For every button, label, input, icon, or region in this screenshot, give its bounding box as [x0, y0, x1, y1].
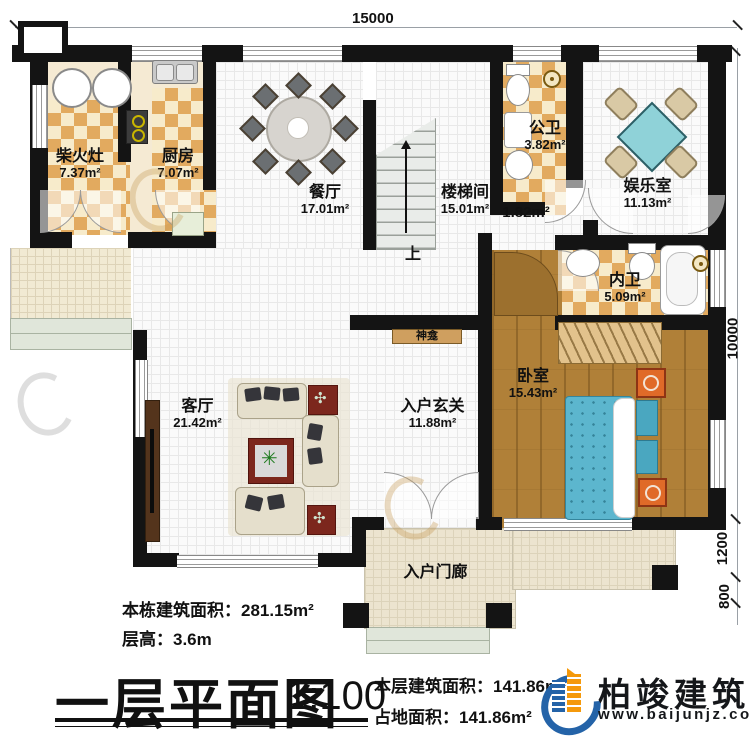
wall: [352, 517, 366, 567]
room-name: 卧室: [498, 368, 568, 386]
room-label-chaihuozao: 柴火灶 7.37m²: [30, 148, 130, 181]
dimension-tick: [730, 514, 741, 525]
window: [710, 250, 726, 307]
wall: [342, 45, 513, 62]
floor-plan-page: 15000 10000 1200 800: [0, 0, 750, 737]
dimension-right-small: 800: [716, 584, 733, 609]
wardrobe: [558, 322, 662, 364]
room-area: 15.43m²: [498, 386, 568, 401]
room-label-bedroom: 卧室 15.43m²: [498, 368, 568, 401]
wall: [30, 232, 72, 248]
dimension-right-mid: 1200: [714, 532, 731, 565]
terrace-floor: [10, 248, 131, 318]
wall: [145, 553, 179, 567]
building-total-value: 281.15m²: [241, 601, 314, 620]
dimension-top: 15000: [352, 10, 394, 27]
kitchen-sink: [152, 60, 198, 84]
room-label-pubbath: 公卫 3.82m²: [510, 120, 580, 153]
dimension-tick: [732, 20, 743, 31]
sofa-pillow: [282, 387, 299, 401]
porch-step: [366, 640, 490, 654]
water-heater: [543, 70, 561, 88]
room-area: 21.42m²: [155, 416, 240, 431]
washbasin: [505, 150, 533, 180]
room-name: 厨房: [138, 148, 218, 166]
room-area: 1.82m²: [496, 204, 556, 221]
wall: [632, 517, 726, 530]
window: [243, 46, 342, 62]
wall: [561, 45, 599, 62]
room-area: 3.82m²: [510, 138, 580, 153]
window: [599, 46, 697, 62]
cooktop: [126, 110, 148, 144]
room-label-fun: 娱乐室 11.13m²: [600, 178, 695, 211]
water-heater: [692, 255, 709, 272]
room-area: 11.88m²: [385, 416, 480, 431]
window: [513, 46, 561, 62]
wall: [202, 45, 243, 62]
window: [710, 420, 726, 488]
wall: [476, 517, 502, 530]
nightstand: [636, 400, 658, 436]
kitchen-counter: [172, 212, 204, 236]
room-label-kitchen: 厨房 7.07m²: [138, 148, 218, 181]
stove-pot: [52, 68, 92, 108]
shrine-shelf: 神龛: [392, 329, 462, 344]
shrine-label: 神龛: [416, 330, 438, 342]
floor-height-value: 3.6m: [173, 630, 212, 649]
side-table: ✣: [308, 385, 338, 415]
bedside-unit: [638, 478, 667, 507]
stove-pot: [92, 68, 132, 108]
brand-site: www.baijunjz.com: [598, 706, 750, 723]
terrace-step: [10, 333, 132, 350]
room-label-foyer: 入户玄关 11.88m²: [385, 398, 480, 431]
top-dimension-line: [15, 27, 737, 28]
room-name: 娱乐室: [600, 178, 695, 196]
brand-logo-icon: [540, 668, 592, 728]
sofa-pillow: [267, 494, 285, 511]
footprint-area: 占地面积：141.86m²: [374, 703, 532, 728]
coffee-table: ✳: [248, 438, 294, 484]
wall: [478, 233, 492, 530]
room-area: 17.01m²: [280, 202, 370, 217]
room-name: 入户门廊: [388, 564, 483, 582]
wall: [363, 100, 376, 250]
floor-height: 层高：3.6m: [122, 625, 212, 650]
room-name: 餐厅: [280, 184, 370, 202]
sofa-pillow: [307, 423, 324, 441]
room-label-dining: 餐厅 17.01m²: [280, 184, 370, 217]
dimension-tick: [730, 572, 741, 583]
side-table: ✣: [307, 505, 336, 535]
room-name: 内卫: [595, 272, 655, 290]
floor-height-label: 层高：: [122, 630, 173, 649]
tv-screen: [150, 429, 154, 513]
bedside-unit: [636, 368, 666, 398]
footprint-value: 141.86m²: [459, 708, 532, 727]
porch-pillar: [486, 603, 512, 628]
room-area: 11.13m²: [600, 196, 695, 211]
sofa-pillow: [244, 387, 262, 402]
stairs-up-label: 上: [398, 246, 428, 264]
wall: [583, 220, 598, 235]
building-total-label: 本栋建筑面积：: [122, 601, 241, 620]
sofa-bottom: [235, 487, 305, 535]
room-label-living: 客厅 21.42m²: [155, 398, 240, 431]
sofa-pillow: [307, 447, 323, 465]
building-total-area: 本栋建筑面积：281.15m²: [122, 596, 314, 621]
plan-scale: 1:100: [286, 674, 386, 719]
floor-area: 本层建筑面积：141.86m²: [374, 672, 566, 697]
up-text: 上: [398, 246, 428, 264]
floor-area-label: 本层建筑面积：: [374, 677, 493, 696]
room-label-hall: 1.82m²: [496, 204, 556, 221]
plant-icon: ✳: [261, 449, 278, 469]
dining-table: [266, 96, 332, 162]
window: [177, 555, 318, 568]
wall: [350, 315, 490, 330]
room-area: 7.07m²: [138, 166, 218, 181]
title-underline: [55, 718, 368, 722]
nightstand: [636, 440, 658, 474]
footprint-label: 占地面积：: [374, 708, 459, 727]
stairs-arrow: [405, 148, 407, 233]
porch-pillar: [652, 565, 678, 590]
sofa-pillow: [263, 386, 280, 401]
room-name: 客厅: [155, 398, 240, 416]
wall: [697, 45, 732, 62]
room-area: 7.37m²: [30, 166, 130, 181]
window: [32, 85, 48, 148]
stairs-arrow-head: [401, 140, 411, 149]
bed-pillows: [613, 398, 635, 518]
room-label-porch: 入户门廊: [388, 564, 483, 582]
room-name: 楼梯间: [420, 184, 510, 202]
room-area: 5.09m²: [595, 290, 655, 305]
porch-pillar: [343, 603, 369, 628]
toilet: [506, 74, 530, 106]
dimension-right-main: 10000: [724, 318, 741, 360]
room-name: 入户玄关: [385, 398, 480, 416]
room-label-inbath: 内卫 5.09m²: [595, 272, 655, 305]
room-name: 柴火灶: [30, 148, 130, 166]
room-name: 公卫: [510, 120, 580, 138]
chimney: [18, 21, 68, 59]
title-underline-thin: [55, 726, 368, 727]
watermark-logo-icon: [9, 365, 82, 443]
